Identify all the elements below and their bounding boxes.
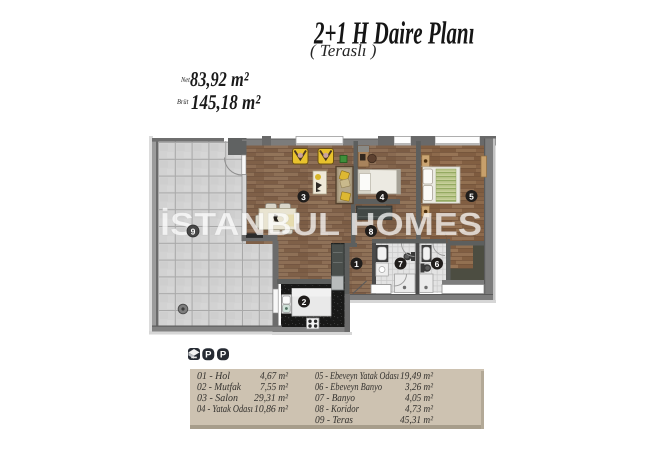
svg-text:04 - Yatak Odası: 04 - Yatak Odası (197, 404, 253, 415)
svg-text:07 - Banyo: 07 - Banyo (315, 393, 355, 404)
svg-text:P: P (220, 350, 227, 361)
svg-text:03 - Salon: 03 - Salon (197, 393, 238, 404)
svg-text:08 - Koridor: 08 - Koridor (315, 404, 360, 415)
svg-text:7: 7 (398, 259, 403, 269)
svg-text:4,05 m²: 4,05 m² (405, 393, 434, 404)
svg-text:1: 1 (354, 259, 359, 269)
svg-text:Net: Net (180, 75, 190, 84)
svg-text:05 - Ebeveyn Yatak Odası: 05 - Ebeveyn Yatak Odası (315, 371, 399, 382)
svg-text:145,18 m²: 145,18 m² (191, 90, 261, 114)
svg-text:( Teraslı ): ( Teraslı ) (310, 41, 377, 60)
svg-text:3: 3 (301, 192, 306, 202)
svg-text:5: 5 (469, 191, 474, 201)
svg-text:29,31 m²: 29,31 m² (254, 393, 289, 404)
svg-text:7,55 m²: 7,55 m² (260, 382, 289, 393)
svg-text:01 - Hol: 01 - Hol (197, 371, 230, 382)
svg-text:9: 9 (191, 226, 196, 236)
svg-text:3,26 m²: 3,26 m² (404, 382, 434, 393)
svg-text:P: P (205, 350, 212, 361)
svg-text:4,73 m²: 4,73 m² (405, 404, 434, 415)
svg-text:10,86 m²: 10,86 m² (254, 404, 289, 415)
svg-text:2: 2 (302, 297, 307, 307)
svg-text:4,67 m²: 4,67 m² (260, 371, 289, 382)
svg-text:09 - Teras: 09 - Teras (315, 415, 353, 426)
svg-text:8: 8 (369, 226, 374, 236)
svg-text:83,92 m²: 83,92 m² (190, 67, 249, 91)
svg-text:02 - Mutfak: 02 - Mutfak (197, 382, 241, 393)
svg-text:4: 4 (380, 192, 385, 202)
svg-text:45,31 m²: 45,31 m² (400, 415, 434, 426)
svg-text:Brüt: Brüt (177, 97, 189, 106)
svg-text:6: 6 (435, 259, 440, 269)
svg-text:İSTANBUL HOMES: İSTANBUL HOMES (160, 206, 482, 242)
svg-text:06 - Ebeveyn Banyo: 06 - Ebeveyn Banyo (315, 382, 382, 393)
svg-text:19,49 m²: 19,49 m² (400, 371, 434, 382)
